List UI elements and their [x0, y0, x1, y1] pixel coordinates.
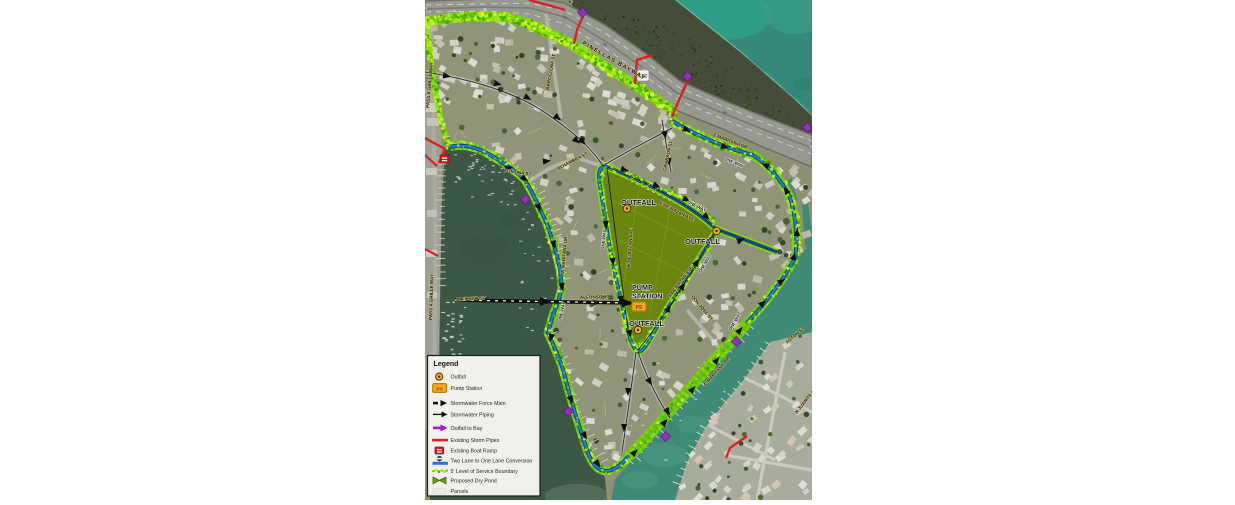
svg-text:ALFONSO ST: ALFONSO ST	[580, 294, 610, 300]
svg-text:Parcels: Parcels	[451, 489, 469, 495]
svg-text:Outfall to Bay: Outfall to Bay	[451, 426, 483, 432]
svg-text:Existing Boat Ramp: Existing Boat Ramp	[451, 449, 498, 455]
svg-text:Stormwater Piping: Stormwater Piping	[451, 412, 494, 418]
svg-text:Legend: Legend	[434, 361, 459, 368]
svg-text:PS: PS	[437, 386, 443, 391]
svg-text:Stormwater Force Main: Stormwater Force Main	[451, 401, 506, 407]
svg-text:Pump Station: Pump Station	[451, 386, 483, 392]
svg-text:OUTFALL: OUTFALL	[629, 319, 664, 328]
svg-text:OUTFALL: OUTFALL	[685, 237, 720, 246]
svg-text:Proposed Dry Pond: Proposed Dry Pond	[451, 478, 497, 484]
svg-text:STATION: STATION	[632, 292, 662, 301]
svg-text:Outfall: Outfall	[451, 375, 466, 381]
svg-text:Two Lane to One Lane Conversio: Two Lane to One Lane Conversion	[451, 459, 533, 465]
svg-text:Existing Storm Pipes: Existing Storm Pipes	[451, 438, 500, 444]
svg-text:5' Level of Service Boundary: 5' Level of Service Boundary	[451, 469, 519, 475]
svg-text:PS: PS	[636, 305, 643, 311]
